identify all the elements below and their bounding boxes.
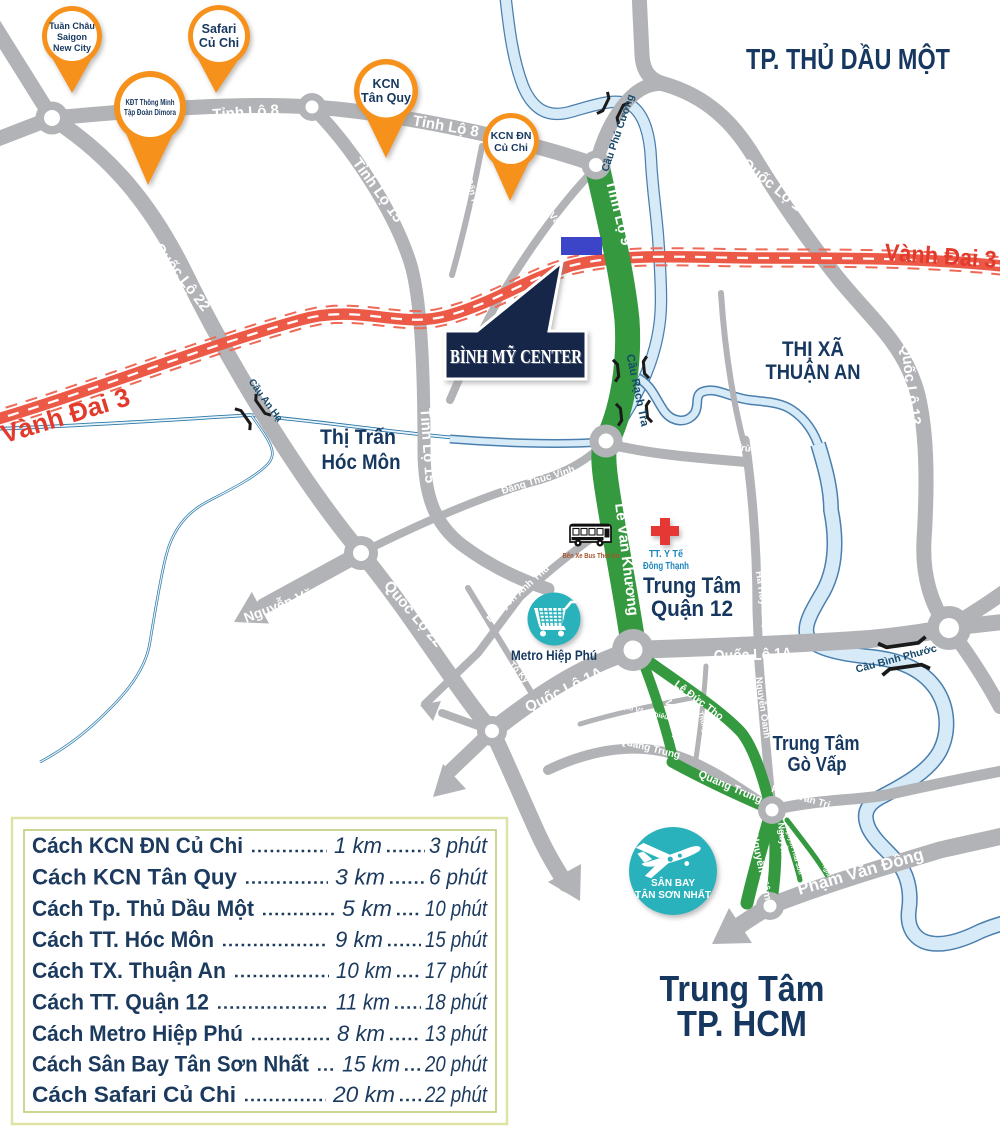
- svg-text:THỊ XÃ: THỊ XÃ: [782, 338, 844, 361]
- svg-text:Quận 12: Quận 12: [651, 596, 733, 621]
- svg-text:Đông Thạnh: Đông Thạnh: [643, 561, 689, 572]
- svg-text:Cách TT. Hóc Môn: Cách TT. Hóc Môn: [32, 927, 214, 952]
- svg-text:KCN: KCN: [372, 77, 399, 91]
- svg-text:Cách KCN Tân Quy: Cách KCN Tân Quy: [32, 865, 238, 890]
- svg-text:TP. HCM: TP. HCM: [677, 1003, 807, 1044]
- svg-text:17 phút: 17 phút: [425, 958, 488, 983]
- svg-text:9 km: 9 km: [335, 927, 383, 952]
- svg-text:Cách Tp. Thủ Dầu Một: Cách Tp. Thủ Dầu Một: [32, 896, 255, 921]
- svg-text:Củ Chi: Củ Chi: [494, 142, 528, 154]
- svg-text:20 phút: 20 phút: [424, 1052, 488, 1077]
- svg-text:Cách TX. Thuận An: Cách TX. Thuận An: [32, 958, 226, 983]
- svg-text:Bến Xe Bus Thới An: Bến Xe Bus Thới An: [563, 551, 620, 560]
- svg-text:Gò Vấp: Gò Vấp: [788, 754, 847, 776]
- svg-text:Tuần Châu: Tuần Châu: [49, 21, 95, 31]
- svg-text:Cách Metro Hiệp Phú: Cách Metro Hiệp Phú: [32, 1021, 243, 1046]
- svg-text:15 km: 15 km: [342, 1052, 400, 1077]
- svg-text:THUẬN AN: THUẬN AN: [766, 360, 861, 384]
- svg-text:Quốc Lộ 1A: Quốc Lộ 1A: [714, 646, 793, 666]
- svg-text:3 km: 3 km: [335, 865, 385, 890]
- svg-text:Cách KCN ĐN Củ Chi: Cách KCN ĐN Củ Chi: [32, 833, 243, 858]
- svg-text:18 phút: 18 phút: [425, 990, 488, 1015]
- svg-text:Metro Hiệp Phú: Metro Hiệp Phú: [511, 647, 597, 663]
- svg-text:SÂN BAY: SÂN BAY: [651, 876, 695, 889]
- svg-text:Safari: Safari: [202, 22, 237, 36]
- svg-text:Tân Quy: Tân Quy: [361, 91, 411, 105]
- svg-text:Cách Sân Bay Tân Sơn Nhất: Cách Sân Bay Tân Sơn Nhất: [32, 1052, 310, 1077]
- svg-text:Hóc Môn: Hóc Môn: [322, 451, 401, 474]
- svg-text:KCN ĐN: KCN ĐN: [491, 130, 532, 142]
- svg-text:3 phút: 3 phút: [429, 833, 488, 858]
- svg-text:22 phút: 22 phút: [424, 1082, 488, 1107]
- svg-text:Trung Tâm: Trung Tâm: [643, 573, 741, 598]
- svg-text:Saigon: Saigon: [57, 32, 87, 42]
- svg-text:New City: New City: [53, 43, 91, 53]
- svg-text:KĐT Thông Minh: KĐT Thông Minh: [126, 97, 175, 107]
- svg-text:10 km: 10 km: [336, 958, 392, 983]
- svg-text:BÌNH MỸ CENTER: BÌNH MỸ CENTER: [450, 344, 582, 368]
- svg-text:TP. THỦ DẦU MỘT: TP. THỦ DẦU MỘT: [746, 42, 950, 76]
- svg-text:1 km: 1 km: [334, 833, 382, 858]
- svg-text:TT. Y Tế: TT. Y Tế: [649, 548, 683, 560]
- svg-text:Thị Trấn: Thị Trấn: [320, 426, 396, 449]
- svg-text:Củ Chi: Củ Chi: [199, 36, 239, 50]
- svg-text:15 phút: 15 phút: [425, 927, 488, 952]
- svg-text:13 phút: 13 phút: [425, 1021, 488, 1046]
- svg-text:5 km: 5 km: [342, 896, 392, 921]
- svg-text:Cách TT. Quận 12: Cách TT. Quận 12: [32, 990, 209, 1015]
- svg-text:10 phút: 10 phút: [425, 896, 488, 921]
- svg-text:TÂN SƠN NHẤT: TÂN SƠN NHẤT: [635, 888, 711, 901]
- svg-text:Trung Tâm: Trung Tâm: [773, 733, 860, 755]
- svg-text:11 km: 11 km: [336, 990, 390, 1015]
- svg-text:20 km: 20 km: [332, 1082, 395, 1107]
- svg-text:Cách Safari Củ Chi: Cách Safari Củ Chi: [32, 1082, 236, 1107]
- svg-text:8 km: 8 km: [337, 1021, 385, 1046]
- svg-text:Tập Đoàn Dimora: Tập Đoàn Dimora: [124, 107, 176, 117]
- svg-text:6 phút: 6 phút: [429, 865, 488, 890]
